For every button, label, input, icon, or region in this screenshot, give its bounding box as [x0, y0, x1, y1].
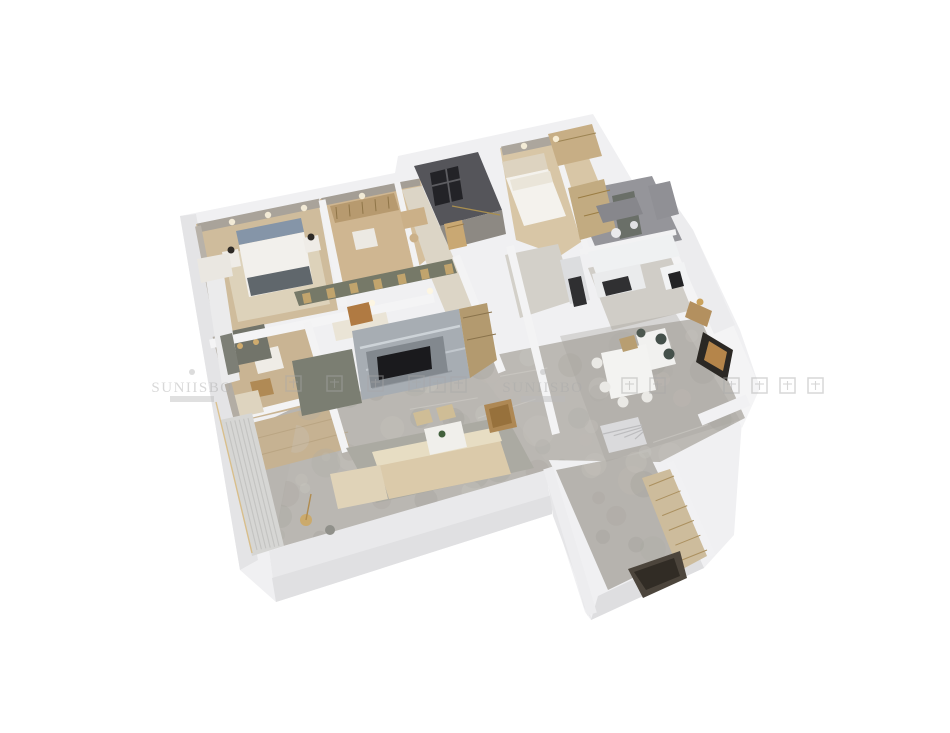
svg-text:SUNIISBO: SUNIISBO	[151, 380, 232, 396]
svg-text:SUNIISBO: SUNIISBO	[502, 380, 583, 396]
